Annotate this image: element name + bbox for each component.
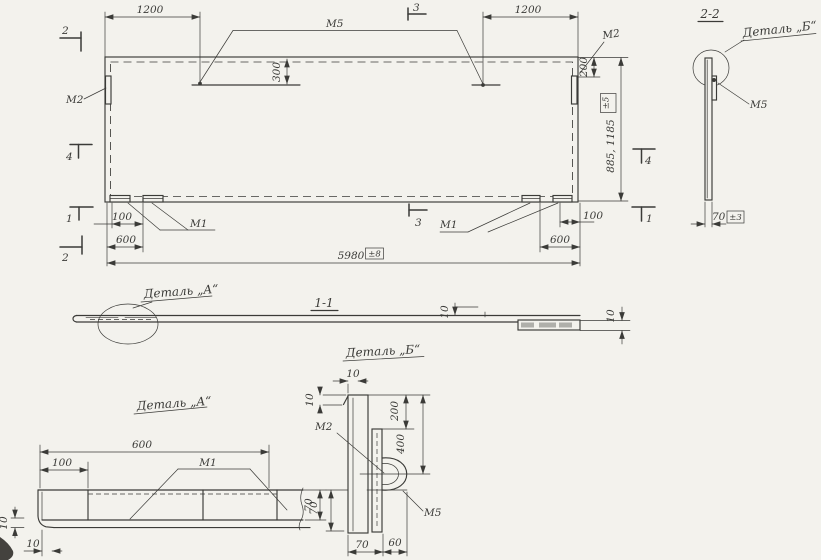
- dim-600-detail-a: 600: [40, 439, 269, 488]
- dim-600-detail-a-text: 600: [132, 439, 152, 451]
- m2-right-text: М2: [601, 27, 621, 42]
- dim-200-right: 200: [577, 57, 600, 78]
- section-2-2: 2-2 Деталь „Б“ М5 70 ±3: [691, 7, 817, 227]
- dim-200-text: 200: [578, 57, 590, 78]
- dim-10-left-detail-b: 10: [304, 387, 346, 413]
- drawing-sheet: 1200 1200 М5 300 3: [0, 0, 821, 560]
- section-marker-3-bottom: 3: [409, 204, 427, 229]
- dim-length: 5980 ±8: [107, 248, 580, 263]
- drawing-canvas: 1200 1200 М5 300 3: [0, 0, 821, 560]
- m5-weld-point-right: [481, 83, 485, 87]
- overlay-strip: [518, 320, 580, 330]
- m1-right-text: М1: [439, 219, 457, 231]
- dim-length-text: 5980: [338, 250, 365, 262]
- dim-1200-right-text: 1200: [515, 4, 542, 16]
- dim-300: 300: [271, 59, 287, 84]
- marker-1-right-text: 1: [646, 213, 653, 225]
- dim-70-bottom-text: 70: [355, 539, 369, 551]
- dim-1200-left: 1200: [105, 4, 200, 83]
- dim-200-detail-b: 200: [368, 395, 430, 429]
- m1-detail-a-text: М1: [198, 457, 216, 469]
- strip-left-fold: [73, 316, 77, 323]
- m5-wire-section: [712, 78, 716, 82]
- section-1-1: 1-1 Деталь „А“ 10 10: [73, 282, 630, 344]
- dim-10-top-detail-b: 10: [333, 368, 368, 393]
- m1-left-text: М1: [189, 218, 207, 230]
- detail-a-callout-label: Деталь „А“: [142, 282, 219, 301]
- dim-600-right-text: 600: [550, 234, 570, 246]
- marker-4-left-text: 4: [65, 151, 73, 163]
- dim-200-detail-b-text: 200: [389, 401, 401, 422]
- section-2-2-title: 2-2: [699, 7, 719, 21]
- detail-b-bar: [348, 395, 368, 533]
- detail-b-view: Деталь „Б“ М2 М5 10 10: [304, 342, 442, 556]
- marker-1-left-text: 1: [66, 213, 73, 225]
- dim-600-left-text: 600: [116, 234, 136, 246]
- dim-10-offset-text: 10: [26, 538, 40, 550]
- m2-detail-b-text: М2: [314, 421, 333, 433]
- dim-10-end: 10: [580, 307, 630, 344]
- dim-10-offset-detail-a: 10: [24, 530, 62, 556]
- m5-label-detail-b: М5: [403, 491, 442, 519]
- dim-10-thickness-text: 10: [0, 516, 10, 530]
- marker-4-right-text: 4: [644, 155, 652, 167]
- m1-label-left: М1: [128, 203, 215, 230]
- detail-a-callout-circle: [98, 304, 158, 344]
- dim-60-text: 60: [388, 537, 402, 549]
- section-marker-1-right: 1: [632, 207, 655, 225]
- dim-1200-right: 1200: [483, 4, 578, 85]
- dim-height: 885, 1185 ±5: [578, 58, 628, 202]
- detail-a-view: Деталь „А“ М1 600 100: [0, 394, 326, 560]
- panel-outline: [105, 57, 578, 202]
- m2-tab-left: [106, 76, 112, 104]
- dim-70-section: 70 ±3: [691, 202, 744, 227]
- dim-100-detail-a: 100: [40, 457, 88, 488]
- section-marker-4-left: 4: [65, 145, 92, 164]
- m5-section-text: М5: [749, 99, 768, 111]
- m5-detail-b-text: М5: [423, 507, 442, 519]
- scan-artifact-corner: [0, 537, 13, 560]
- m5-label: М5: [325, 18, 344, 30]
- dim-400-detail-b-text: 400: [395, 434, 407, 455]
- section-marker-2-top: 2: [60, 25, 81, 51]
- dim-10-left-text: 10: [304, 393, 316, 407]
- m2-tab-right: [572, 76, 578, 104]
- dim-10-strip: 10: [439, 303, 478, 319]
- section-marker-2-bottom: 2: [60, 236, 82, 264]
- dim-70-left-detail-b: 70: [308, 490, 348, 531]
- detail-b-callout-label: Деталь „Б“: [741, 18, 818, 40]
- main-view: 1200 1200 М5 300 3: [60, 2, 655, 266]
- tolerance-length-text: ±8: [368, 250, 381, 260]
- dim-10-top-text: 10: [346, 368, 360, 380]
- dim-10-end-text: 10: [605, 309, 617, 323]
- dim-10-strip-text: 10: [439, 305, 451, 319]
- m5-weld-point-left: [198, 82, 202, 86]
- dim-100-left-text: 100: [112, 211, 132, 223]
- m5-callout: М5: [192, 18, 500, 87]
- section-marker-4-right: 4: [633, 149, 655, 167]
- marker-2-top-text: 2: [61, 25, 69, 37]
- panel-fold-dashed-line: [111, 62, 573, 197]
- section-marker-3-top: 3: [408, 2, 426, 20]
- m2-left-text: М2: [65, 94, 84, 106]
- section-bar: [705, 58, 712, 200]
- dim-10-thickness-detail-a: 10: [0, 507, 24, 538]
- m2-label-left: М2: [65, 88, 106, 106]
- section-1-1-title: 1-1: [314, 296, 333, 310]
- dim-1200-left-text: 1200: [137, 4, 164, 16]
- marker-2-bottom-text: 2: [61, 252, 69, 264]
- marker-3-bottom-text: 3: [415, 217, 422, 229]
- marker-3-top-text: 3: [413, 2, 420, 14]
- dim-100-detail-a-text: 100: [52, 457, 72, 469]
- m1-callout-detail-a: М1: [130, 457, 287, 519]
- dim-300-text: 300: [271, 62, 283, 82]
- tolerance-70-text: ±3: [729, 213, 742, 223]
- tolerance-height-text: ±5: [602, 97, 612, 110]
- detail-b-top-fold: [344, 396, 349, 405]
- m5-label-section: М5: [718, 83, 768, 111]
- dim-70-section-text: 70: [712, 211, 726, 223]
- dim-height-text: 885, 1185: [605, 119, 617, 173]
- dim-70-left-text: 70: [308, 501, 320, 515]
- detail-a-fold-curve: [38, 516, 54, 528]
- section-marker-1-left: 1: [66, 207, 93, 225]
- dim-100-right-text: 100: [583, 210, 603, 222]
